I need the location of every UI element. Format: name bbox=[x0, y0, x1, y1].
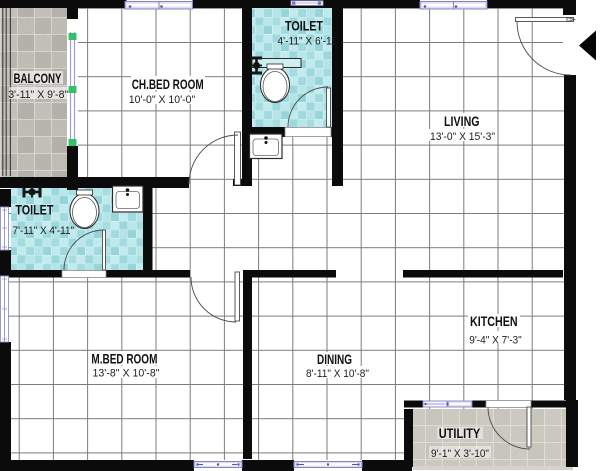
svg-text:7'-11" X 4'-11": 7'-11" X 4'-11" bbox=[13, 225, 75, 237]
svg-text:4'-11" X 6'-11: 4'-11" X 6'-11 bbox=[278, 36, 337, 48]
svg-text:13'-0" X 15'-3": 13'-0" X 15'-3" bbox=[430, 131, 495, 143]
svg-text:KITCHEN: KITCHEN bbox=[470, 313, 518, 329]
svg-text:13'-8" X 10'-8": 13'-8" X 10'-8" bbox=[93, 368, 160, 380]
svg-text:CH.BED ROOM: CH.BED ROOM bbox=[132, 76, 204, 92]
svg-text:LIVING: LIVING bbox=[444, 113, 480, 129]
svg-text:9'-4" X 7'-3": 9'-4" X 7'-3" bbox=[469, 335, 522, 347]
svg-text:UTILITY: UTILITY bbox=[439, 425, 481, 441]
svg-text:9'-1" X 3'-10": 9'-1" X 3'-10" bbox=[431, 448, 489, 460]
svg-text:10'-0" X 10'-0": 10'-0" X 10'-0" bbox=[129, 94, 196, 106]
svg-text:3'-11" X 9'-8": 3'-11" X 9'-8" bbox=[8, 89, 68, 101]
svg-text:M.BED ROOM: M.BED ROOM bbox=[91, 351, 157, 367]
svg-text:TOILET: TOILET bbox=[285, 18, 323, 34]
svg-text:8'-11" X 10'-8": 8'-11" X 10'-8" bbox=[306, 368, 369, 380]
svg-text:DINING: DINING bbox=[317, 351, 352, 367]
svg-text:TOILET: TOILET bbox=[15, 202, 53, 218]
svg-text:BALCONY: BALCONY bbox=[14, 70, 62, 86]
